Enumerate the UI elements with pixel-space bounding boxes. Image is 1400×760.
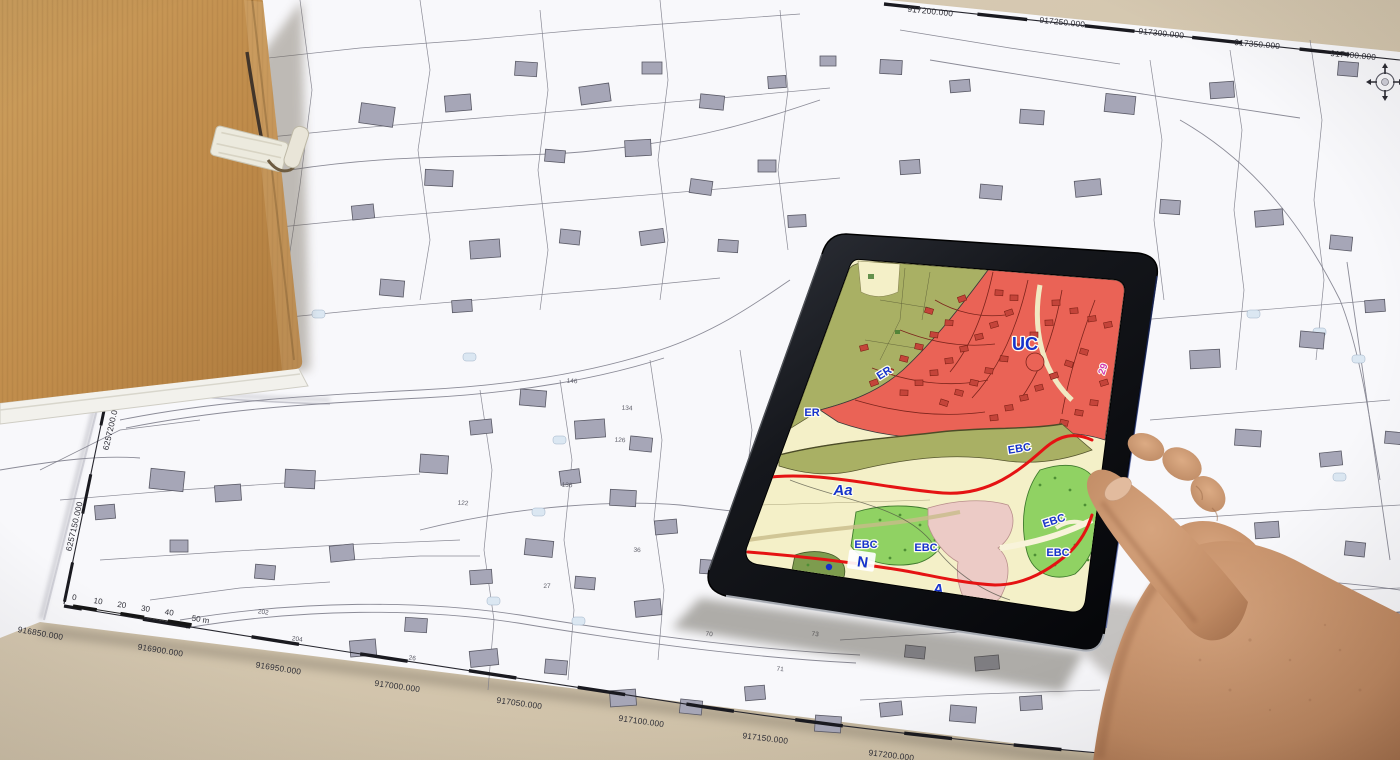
red-zone-building — [1070, 308, 1078, 314]
building — [1234, 429, 1261, 447]
building — [900, 159, 921, 174]
parcel-number: 146 — [566, 378, 578, 386]
building — [452, 299, 473, 312]
pool — [1352, 355, 1365, 363]
tree-dot — [879, 519, 882, 522]
building — [654, 519, 677, 535]
red-zone-building — [960, 345, 969, 352]
building — [1319, 451, 1342, 467]
building — [1160, 199, 1181, 214]
building — [329, 544, 355, 562]
parcel-number: 134 — [621, 405, 633, 413]
building — [469, 239, 500, 259]
pool — [463, 353, 476, 361]
building — [699, 94, 724, 110]
red-zone-building — [1005, 404, 1014, 411]
photo-scene: 917200.000 917250.000 917300.000 917350.… — [0, 0, 1400, 760]
building — [419, 454, 448, 474]
parcel-number: 126 — [614, 437, 626, 445]
tree-dot — [1069, 489, 1072, 492]
building — [425, 169, 454, 186]
red-zone-building — [1045, 320, 1053, 326]
building — [1190, 349, 1221, 369]
building — [820, 56, 836, 66]
parcel-number: 36 — [633, 547, 641, 554]
building — [1020, 109, 1045, 125]
building — [559, 229, 580, 245]
building — [1074, 179, 1102, 198]
building — [579, 83, 611, 105]
building — [575, 576, 596, 590]
building — [634, 599, 662, 618]
building — [470, 569, 493, 585]
building — [1299, 331, 1324, 349]
building — [469, 649, 499, 668]
building — [515, 61, 538, 77]
building — [744, 685, 765, 701]
red-zone-building — [990, 415, 999, 421]
building — [379, 279, 404, 297]
parcel-number: 136 — [561, 482, 573, 490]
building — [405, 617, 428, 633]
building — [1329, 235, 1352, 251]
tree-dot — [899, 514, 902, 517]
pool — [487, 597, 500, 605]
building — [1254, 209, 1283, 227]
building — [788, 215, 807, 228]
building — [1254, 521, 1279, 539]
tree-dot — [919, 524, 922, 527]
zone-label-er-lower: ER — [804, 407, 819, 419]
red-zone-building — [1000, 356, 1009, 362]
building — [758, 160, 776, 172]
building — [718, 239, 739, 252]
parcel-number: 122 — [457, 500, 469, 508]
building — [544, 659, 567, 675]
red-zone-building — [915, 380, 923, 386]
building — [768, 75, 787, 88]
red-zone-building — [1104, 321, 1113, 328]
red-zone-building — [1088, 315, 1097, 322]
building — [689, 179, 713, 196]
parcel-number: 27 — [543, 583, 551, 590]
zone-label-ebc-5: EBC — [914, 542, 937, 554]
building — [545, 149, 566, 163]
building — [149, 468, 185, 491]
pool — [572, 617, 585, 625]
scene-svg: 917200.000 917250.000 917300.000 917350.… — [0, 0, 1400, 760]
red-zone-building — [1075, 409, 1084, 416]
tree-dot — [889, 557, 892, 560]
building — [1104, 93, 1136, 114]
building — [1337, 61, 1358, 77]
red-zone-building — [930, 331, 939, 338]
red-zone-building — [930, 370, 938, 376]
building — [1344, 541, 1365, 557]
building — [469, 419, 492, 435]
building — [519, 389, 546, 407]
red-zone-building — [1090, 400, 1099, 406]
building — [880, 59, 903, 74]
map-blue-dot — [826, 564, 832, 570]
red-zone-circle-place — [1026, 353, 1044, 371]
tree-dot — [1034, 554, 1037, 557]
building — [524, 539, 554, 558]
pool — [553, 436, 566, 444]
building — [1020, 695, 1043, 711]
red-zone-building — [1052, 300, 1060, 306]
zone-label-aa: Aa — [832, 482, 852, 499]
building — [949, 705, 976, 723]
building — [610, 489, 637, 506]
red-zone-building — [915, 343, 924, 350]
red-zone-building — [900, 390, 908, 396]
pool — [1247, 310, 1260, 318]
building — [94, 504, 115, 520]
building — [629, 436, 652, 452]
building — [254, 564, 275, 580]
parcel-number: 26 — [408, 655, 417, 663]
building — [351, 204, 374, 220]
building — [879, 701, 902, 717]
building — [639, 228, 665, 245]
building — [1209, 81, 1234, 99]
building — [170, 540, 188, 552]
parcel-number: 71 — [776, 666, 784, 674]
building — [444, 94, 471, 112]
tree-dot — [1054, 477, 1057, 480]
zone-label-uc: UC — [1012, 334, 1038, 354]
red-zone-building — [995, 290, 1003, 296]
pool — [532, 508, 545, 516]
tree-dot — [1084, 504, 1087, 507]
red-zone-building — [945, 320, 953, 326]
zone-label-ebc-3: EBC — [1046, 547, 1069, 559]
zone-label-ebc-4: EBC — [854, 539, 877, 551]
tree-dot — [1087, 559, 1090, 562]
document-folder — [0, 0, 310, 424]
tree-dot — [1039, 484, 1042, 487]
pool — [312, 310, 325, 318]
building — [625, 139, 652, 156]
red-zone-building — [945, 358, 954, 364]
building — [979, 184, 1002, 200]
building — [574, 419, 605, 439]
tree-dot — [807, 564, 810, 567]
zone-yellow-corner — [858, 261, 900, 297]
building — [1385, 431, 1400, 445]
pool — [1333, 473, 1346, 481]
tree-dot — [904, 549, 907, 552]
red-zone-building — [985, 367, 994, 374]
building — [359, 103, 395, 128]
building — [285, 469, 316, 489]
building — [1365, 299, 1386, 312]
red-zone-building — [1010, 295, 1018, 301]
building — [950, 79, 971, 93]
building — [642, 62, 662, 74]
building — [214, 484, 241, 502]
